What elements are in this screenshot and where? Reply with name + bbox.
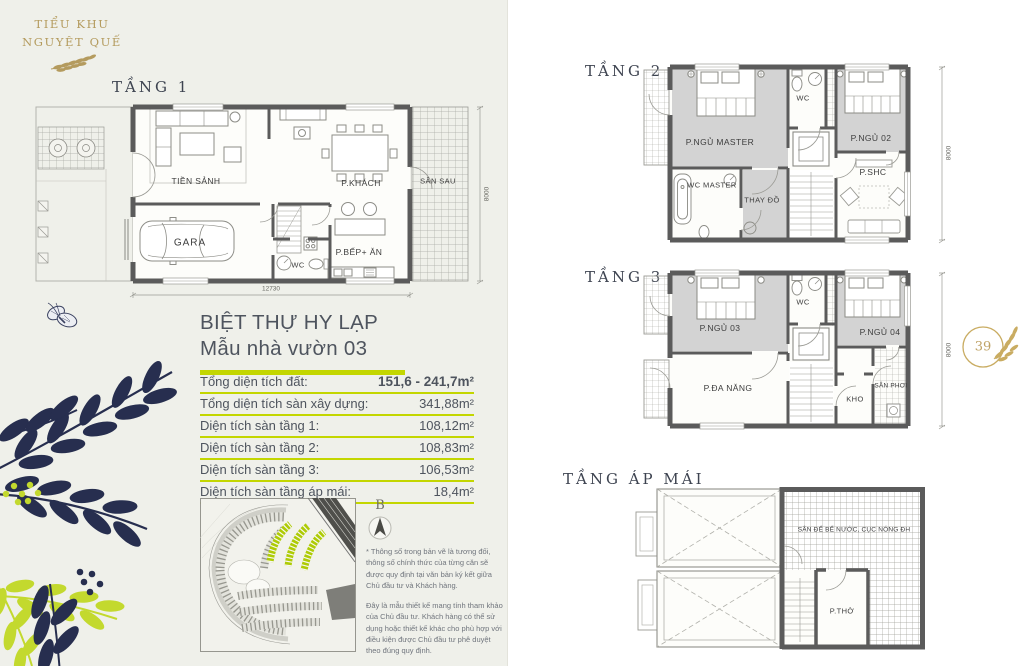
disclaimer-notes: * Thông số trong bản vẽ là tương đối, th…: [366, 546, 506, 665]
project-logo: TIỂU KHU NGUYỆT QUẾ: [10, 16, 134, 72]
row-value: 18,4m²: [434, 484, 474, 499]
room-label-tien-sanh: TIỀN SẢNH: [172, 176, 221, 186]
room-label-p-ngu-03: P.NGỦ 03: [700, 323, 741, 333]
lot-badge: 39: [958, 321, 1024, 375]
butterfly-icon: [44, 302, 80, 339]
room-label-p-bep-an: P.BẾP+ ĂN: [336, 247, 383, 257]
attic-plan-drawing: [630, 484, 930, 656]
room-label-p-ngu-02: P.NGỦ 02: [851, 133, 892, 143]
area-table: Tổng diện tích đất: 151,6 - 241,7m² Tổng…: [200, 372, 474, 504]
room-label-p-ngu-04: P.NGỦ 04: [860, 327, 901, 337]
attic-plan: SÂN ĐỂ BỂ NƯỚC, CỤC NÓNG ĐH P.THỜ: [630, 484, 930, 656]
floor2-plan: P.NGỦ MASTER WC P.NGỦ 02 WC MASTER THAY …: [640, 60, 955, 250]
floor1-plan-drawing: [28, 97, 506, 312]
dim-height: 8000: [946, 343, 953, 357]
villa-subtitle: Mẫu nhà vườn 03: [200, 336, 480, 362]
table-row: Diện tích sàn tầng 3: 106,53m²: [200, 460, 474, 482]
table-row: Tổng diện tích sàn xây dựng: 341,88m²: [200, 394, 474, 416]
note-paragraph-1: * Thông số trong bản vẽ là tương đối, th…: [366, 546, 506, 591]
row-value: 341,88m²: [419, 396, 474, 411]
room-label-p-ngu-master: P.NGỦ MASTER: [686, 137, 754, 147]
room-label-wc: WC: [796, 94, 809, 103]
row-value: 108,12m²: [419, 418, 474, 433]
row-value: 108,83m²: [419, 440, 474, 455]
row-value: 151,6 - 241,7m²: [378, 374, 474, 389]
leaf-decoration: [0, 344, 232, 666]
logo-line2: NGUYỆT QUẾ: [10, 34, 134, 52]
room-label-wc: WC: [796, 298, 809, 307]
floor2-plan-drawing: [640, 60, 955, 250]
note-paragraph-2: Đây là mẫu thiết kế mang tính tham khảo …: [366, 600, 506, 656]
row-value: 106,53m²: [419, 462, 474, 477]
room-label-wc: WC: [291, 261, 304, 270]
dim-height: 8000: [484, 187, 491, 201]
room-label-gara: GARA: [174, 238, 206, 249]
room-label-san-sau: SÂN SAU: [420, 177, 456, 186]
dim-width: 12730: [262, 286, 280, 293]
compass-arrow-icon: [367, 514, 393, 540]
floor1-title: TẦNG 1: [112, 78, 190, 96]
room-label-p-da-nang: P.ĐA NĂNG: [704, 383, 753, 393]
room-label-san-ky-thuat: SÂN ĐỂ BỂ NƯỚC, CỤC NÓNG ĐH: [798, 527, 911, 534]
room-label-wc-master: WC MASTER: [687, 181, 736, 190]
panel-divider: [507, 0, 508, 666]
logo-line1: TIỂU KHU: [10, 16, 134, 34]
floor1-plan: TIỀN SẢNH P.KHÁCH SÂN SAU GARA P.BẾP+ ĂN…: [28, 97, 506, 312]
laurel-branch-icon: [47, 54, 97, 72]
floor3-plan: P.NGỦ 03 WC P.NGỦ 04 P.ĐA NĂNG KHO SÂN P…: [640, 266, 955, 441]
room-label-p-shc: P.SHC: [860, 167, 887, 177]
room-label-p-khach: P.KHÁCH: [341, 178, 381, 188]
room-label-p-tho: P.THỜ: [830, 607, 855, 616]
table-row: Diện tích sàn tầng 2: 108,83m²: [200, 438, 474, 460]
compass-label: B: [366, 498, 394, 513]
table-row: Tổng diện tích đất: 151,6 - 241,7m²: [200, 372, 474, 394]
dim-height: 8000: [946, 146, 953, 160]
room-label-kho: KHO: [846, 395, 863, 404]
villa-title: BIỆT THỰ HY LẠP: [200, 310, 480, 336]
title-block: BIỆT THỰ HY LẠP Mẫu nhà vườn 03: [200, 310, 480, 375]
brochure-page: TIỂU KHU NGUYỆT QUẾ TẦNG 1: [0, 0, 1024, 666]
room-label-san-phoi: SÂN PHƠI: [874, 383, 907, 390]
compass: B: [366, 498, 394, 545]
table-row: Diện tích sàn tầng 1: 108,12m²: [200, 416, 474, 438]
room-label-thay-do: THAY ĐỒ: [744, 196, 779, 205]
floor3-plan-drawing: [640, 266, 955, 441]
badge-number: 39: [975, 340, 992, 355]
